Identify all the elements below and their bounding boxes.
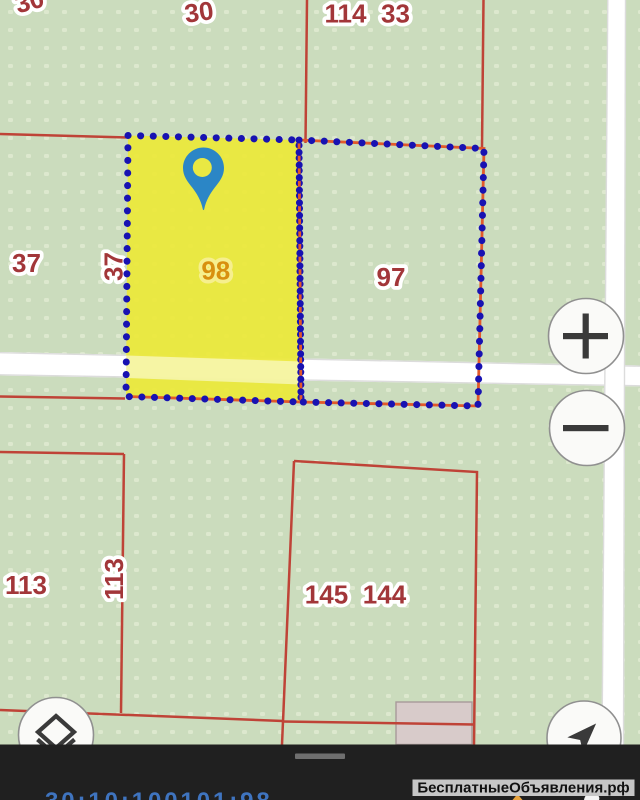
svg-text:37: 37 bbox=[99, 252, 129, 281]
svg-text:98: 98 bbox=[201, 256, 230, 286]
svg-text:113: 113 bbox=[99, 558, 129, 600]
svg-text:145: 145 bbox=[305, 580, 348, 610]
svg-text:144: 144 bbox=[363, 580, 407, 610]
svg-text:30:10:100101:98: 30:10:100101:98 bbox=[45, 788, 273, 800]
svg-text:30: 30 bbox=[183, 0, 216, 29]
svg-text:37: 37 bbox=[12, 248, 41, 278]
svg-text:33: 33 bbox=[381, 0, 410, 29]
svg-text:114: 114 bbox=[325, 0, 367, 29]
svg-text:БесплатныеОбъявления.рф: БесплатныеОбъявления.рф bbox=[417, 780, 629, 797]
svg-text:113: 113 bbox=[5, 570, 47, 600]
svg-text:97: 97 bbox=[377, 262, 406, 292]
